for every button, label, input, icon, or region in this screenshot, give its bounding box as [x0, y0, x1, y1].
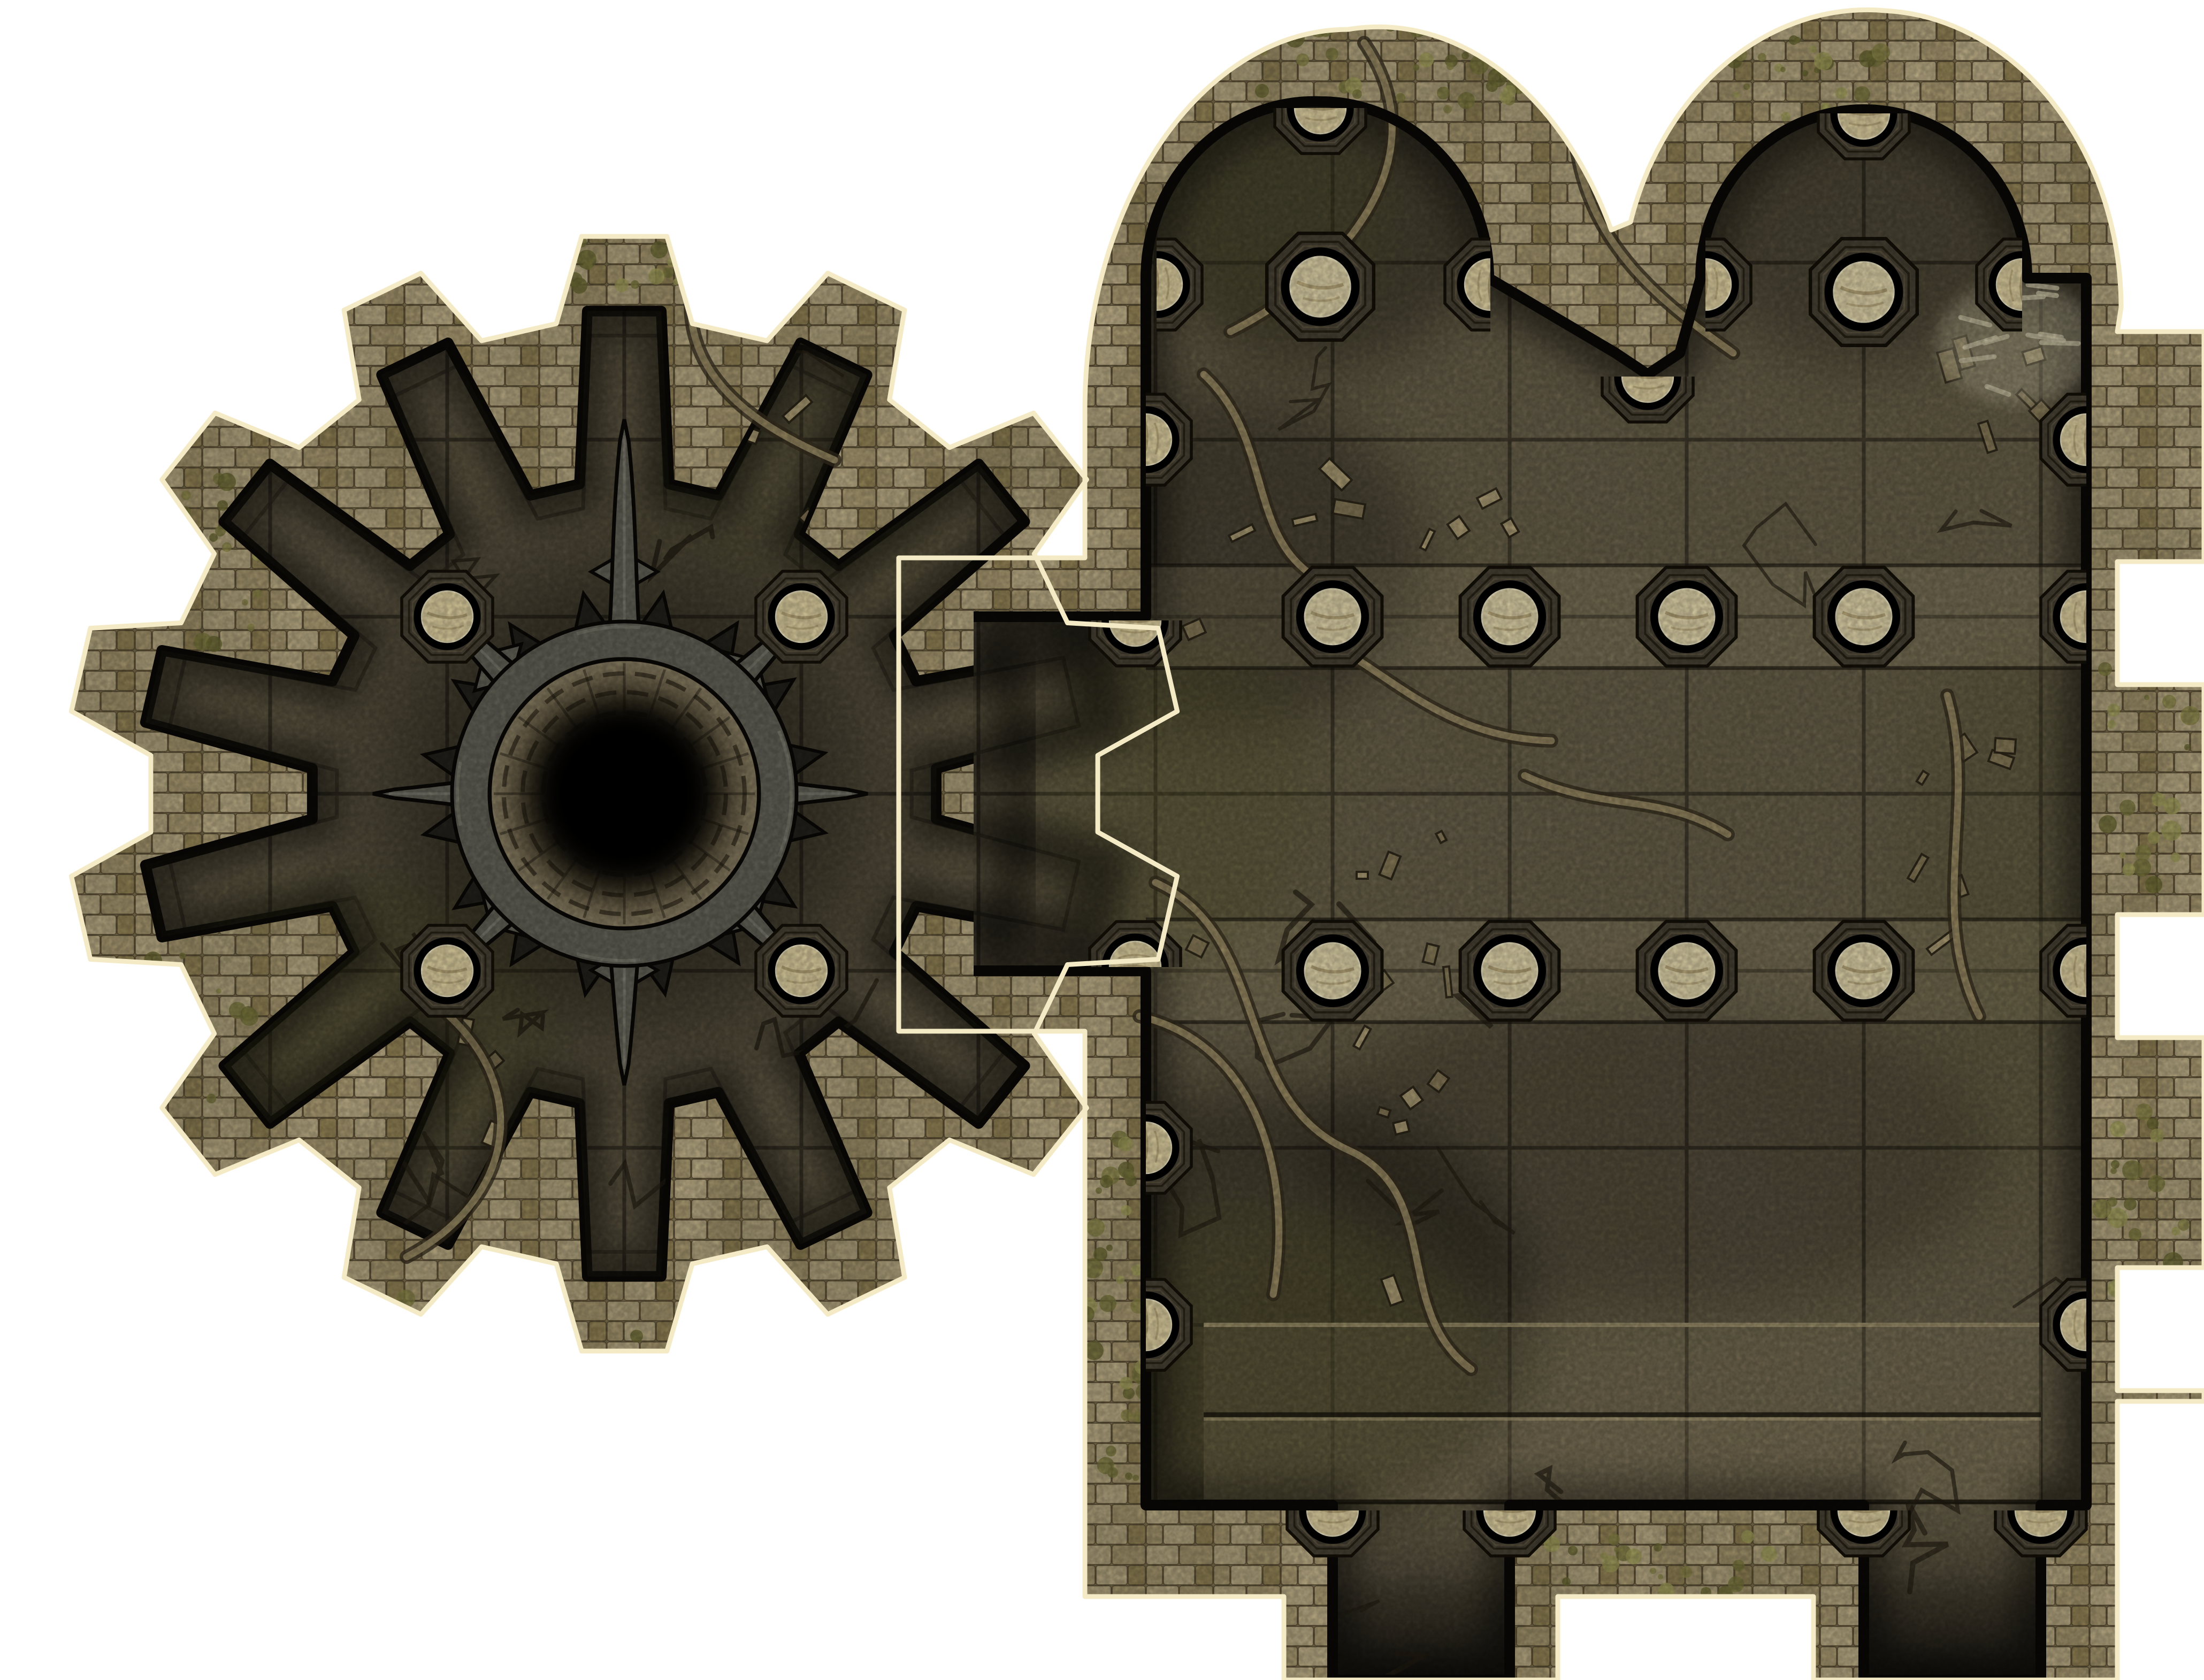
map-canvas: [0, 0, 2204, 1680]
texture-grain: [0, 0, 2204, 1680]
dungeon-map: [0, 0, 2204, 1680]
